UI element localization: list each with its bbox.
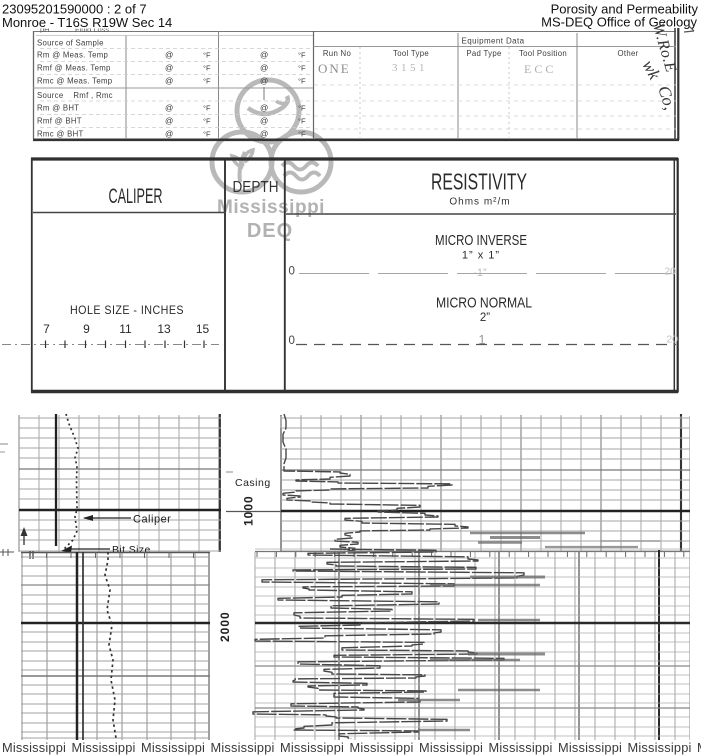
svg-text:Mississippi: Mississippi (697, 740, 701, 755)
svg-text:Mississippi: Mississippi (558, 740, 622, 755)
svg-text:0: 0 (289, 266, 295, 278)
svg-text:Ohms m²/m: Ohms m²/m (449, 197, 510, 208)
svg-text:ECC: ECC (524, 62, 556, 76)
svg-text:Tool Type: Tool Type (393, 49, 429, 58)
svg-text:Caliper: Caliper (133, 514, 171, 526)
svg-text:Mississippi: Mississippi (2, 740, 66, 755)
svg-text:Other: Other (618, 49, 639, 58)
svg-text:9: 9 (83, 322, 90, 336)
svg-text:@: @ (165, 51, 173, 60)
svg-text:...: ... (230, 25, 236, 34)
svg-text:°F: °F (203, 64, 211, 73)
svg-text:Tool Position: Tool Position (519, 49, 567, 58)
svg-text:MS-DEQ Office of Geology: MS-DEQ Office of Geology (541, 15, 697, 30)
svg-text:°F: °F (298, 104, 306, 113)
svg-text:°F: °F (203, 77, 211, 86)
svg-text:Mississippi: Mississippi (350, 740, 414, 755)
svg-text:CALIPER: CALIPER (109, 185, 163, 208)
svg-text:@: @ (260, 117, 268, 126)
svg-text:..: .. (340, 25, 344, 34)
svg-text:Co,: Co, (654, 83, 680, 112)
svg-text:Mississippi: Mississippi (211, 740, 275, 755)
svg-text:@: @ (165, 130, 173, 139)
svg-text:@: @ (260, 64, 268, 73)
svg-text:·1”: ·1” (473, 267, 487, 279)
svg-text:Mississippi: Mississippi (489, 740, 553, 755)
svg-text:2”: 2” (480, 312, 490, 324)
svg-text:3151: 3151 (392, 62, 428, 74)
svg-text:Casing: Casing (235, 477, 271, 489)
svg-text:°F: °F (298, 77, 306, 86)
svg-text:@: @ (260, 77, 268, 86)
svg-text:Rm @ BHT: Rm @ BHT (37, 104, 79, 113)
svg-text:Rmf @ Meas. Temp: Rmf @ Meas. Temp (37, 64, 111, 73)
svg-text:ONE: ONE (318, 61, 351, 76)
svg-text:°F: °F (203, 130, 211, 139)
svg-text:Run No: Run No (323, 49, 352, 58)
svg-text:0: 0 (289, 335, 295, 347)
svg-text:7: 7 (43, 322, 50, 336)
svg-text:HOLE SIZE - INCHES: HOLE SIZE - INCHES (70, 303, 184, 317)
svg-text:Mississippi: Mississippi (419, 740, 483, 755)
svg-text:@: @ (165, 64, 173, 73)
svg-text:°F: °F (203, 117, 211, 126)
svg-text:@: @ (260, 104, 268, 113)
svg-text:2000: 2000 (218, 611, 232, 642)
svg-text:Mississippi: Mississippi (141, 740, 205, 755)
svg-text:°F: °F (203, 104, 211, 113)
svg-text:Source of Sample: Source of Sample (37, 39, 104, 48)
svg-text:13: 13 (157, 322, 171, 336)
svg-text:°F: °F (298, 130, 306, 139)
svg-text:15: 15 (196, 322, 210, 336)
svg-text:1000: 1000 (242, 495, 256, 526)
svg-text:Rmf @ BHT: Rmf @ BHT (37, 117, 82, 126)
svg-text:Mississippi: Mississippi (280, 740, 344, 755)
svg-text:°F: °F (298, 117, 306, 126)
svg-text:Mississippi: Mississippi (217, 197, 325, 218)
svg-text:@: @ (260, 130, 268, 139)
svg-text:Rm @ Meas. Temp: Rm @ Meas. Temp (37, 51, 109, 60)
svg-text:1” x 1”: 1” x 1” (462, 250, 500, 262)
svg-text:RESISTIVITY: RESISTIVITY (431, 169, 527, 195)
svg-text:20: 20 (666, 334, 678, 346)
svg-text:MICRO NORMAL: MICRO NORMAL (436, 295, 532, 312)
svg-text:Monroe - T16S R19W Sec 14: Monroe - T16S R19W Sec 14 (2, 15, 172, 30)
svg-text:DEPTH: DEPTH (233, 179, 279, 196)
svg-text:@: @ (165, 77, 173, 86)
svg-text:MICRO INVERSE: MICRO INVERSE (435, 232, 527, 249)
svg-text:°F: °F (203, 51, 211, 60)
svg-text:Source Rmf , Rmc: Source Rmf , Rmc (37, 91, 113, 100)
svg-text:°F: °F (298, 64, 306, 73)
svg-text:Rmc @ BHT: Rmc @ BHT (37, 130, 84, 139)
svg-text:@: @ (165, 117, 173, 126)
svg-text:Mississippi: Mississippi (72, 740, 136, 755)
svg-text:DEQ: DEQ (247, 220, 293, 242)
svg-text:@: @ (260, 51, 268, 60)
svg-text:11: 11 (119, 322, 132, 336)
svg-text:@: @ (165, 104, 173, 113)
svg-text:Pad Type: Pad Type (466, 49, 501, 58)
svg-text:°F: °F (298, 51, 306, 60)
svg-text:Rmc @ Meas. Temp: Rmc @ Meas. Temp (37, 77, 113, 86)
svg-text:20: 20 (664, 266, 676, 278)
svg-text:Equipment Data: Equipment Data (462, 37, 525, 46)
svg-text:Mississippi: Mississippi (628, 740, 692, 755)
